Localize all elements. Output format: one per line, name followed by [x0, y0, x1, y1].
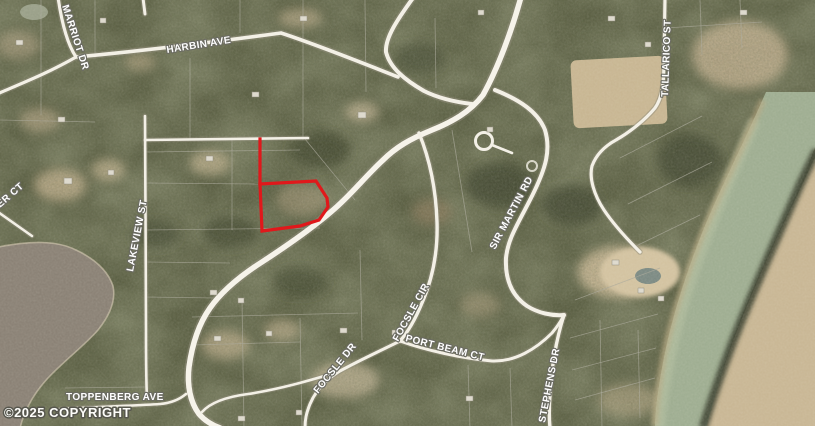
- terrain-speckle-light: [0, 0, 815, 426]
- copyright-notice: ©2025 COPYRIGHT: [4, 405, 131, 420]
- aerial-map-viewport[interactable]: MARRIOT DR HARBIN AVE ER CT LAKEVIEW ST …: [0, 0, 815, 426]
- label-toppenberg-ave: TOPPENBERG AVE: [66, 392, 164, 403]
- aerial-map-svg: MARRIOT DR HARBIN AVE ER CT LAKEVIEW ST …: [0, 0, 815, 426]
